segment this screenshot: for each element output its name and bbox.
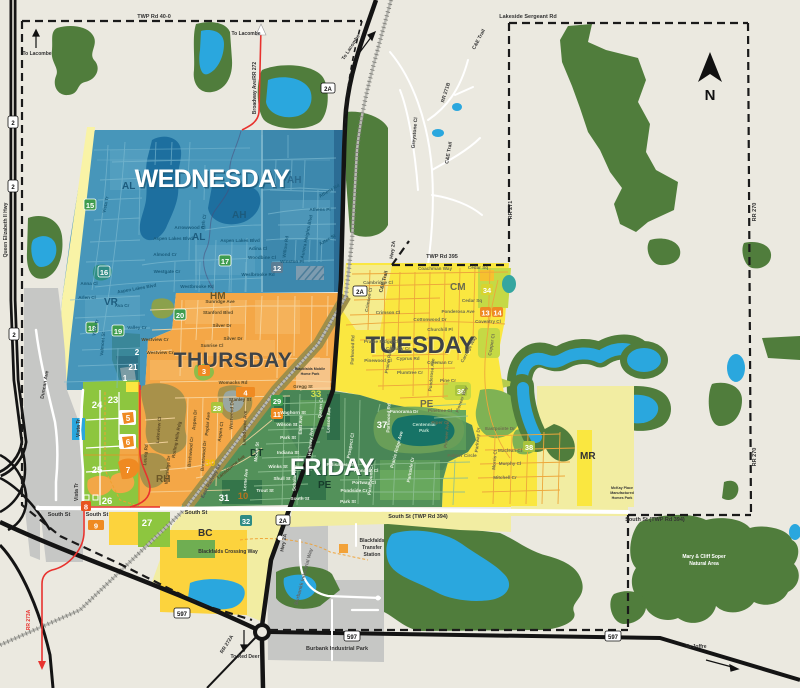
svg-text:Blackfalds Mobile: Blackfalds Mobile — [295, 367, 325, 371]
svg-text:Lakeside Sergeant Rd: Lakeside Sergeant Rd — [499, 14, 556, 20]
svg-text:3: 3 — [202, 367, 206, 376]
svg-text:Eastpointe Dr: Eastpointe Dr — [485, 426, 515, 431]
svg-text:Mitchell Cr: Mitchell Cr — [493, 475, 517, 480]
svg-text:Ava Cr: Ava Cr — [115, 303, 130, 308]
svg-text:Vista Tr: Vista Tr — [74, 483, 80, 501]
svg-text:29: 29 — [273, 397, 281, 406]
svg-text:Cedar Sq: Cedar Sq — [462, 298, 482, 303]
svg-text:Coachman Way: Coachman Way — [418, 266, 452, 271]
svg-text:Pine Cr: Pine Cr — [440, 378, 456, 383]
svg-text:Plumtree Cr: Plumtree Cr — [397, 370, 423, 375]
svg-text:Shull St: Shull St — [273, 476, 291, 481]
svg-text:19: 19 — [114, 327, 122, 336]
svg-text:THURSDAY: THURSDAY — [174, 349, 293, 372]
svg-text:TWP Rd 395: TWP Rd 395 — [426, 254, 458, 260]
svg-text:WEDNESDAY: WEDNESDAY — [135, 165, 291, 193]
svg-text:Indiana St: Indiana St — [277, 450, 299, 455]
svg-text:38: 38 — [525, 443, 533, 452]
svg-text:Winston Pl: Winston Pl — [280, 259, 304, 264]
svg-text:South St (TWP Rd 394): South St (TWP Rd 394) — [625, 517, 685, 523]
svg-text:Cyprus Rd: Cyprus Rd — [396, 356, 419, 361]
svg-text:2: 2 — [135, 348, 140, 357]
svg-text:7: 7 — [126, 466, 131, 475]
svg-text:Winks St: Winks St — [268, 464, 288, 469]
svg-text:Prairie Ridge Cl: Prairie Ridge Cl — [364, 339, 398, 344]
svg-text:14: 14 — [493, 309, 502, 318]
svg-text:9: 9 — [94, 522, 98, 531]
svg-text:AH: AH — [287, 175, 301, 186]
svg-text:Homes Park: Homes Park — [612, 496, 633, 500]
svg-text:RR 273A: RR 273A — [26, 609, 32, 630]
svg-text:Churchill Pl: Churchill Pl — [427, 327, 453, 332]
svg-text:South St: South St — [185, 510, 208, 516]
svg-text:23: 23 — [108, 395, 119, 406]
svg-text:Broadway Ave/RR 272: Broadway Ave/RR 272 — [252, 62, 258, 115]
svg-text:Athens Pl: Athens Pl — [309, 207, 330, 212]
svg-text:South St: South St — [291, 496, 310, 501]
svg-text:10: 10 — [238, 491, 249, 502]
svg-text:Mary & Cliff Soper: Mary & Cliff Soper — [682, 554, 725, 560]
svg-text:RR 270: RR 270 — [752, 448, 758, 467]
svg-text:34: 34 — [483, 286, 492, 295]
svg-text:Burbank Industrial Park: Burbank Industrial Park — [306, 646, 369, 652]
svg-text:27: 27 — [142, 518, 153, 529]
svg-text:Valley Cr: Valley Cr — [127, 325, 147, 330]
svg-text:Blackfalds: Blackfalds — [359, 538, 384, 544]
svg-text:26: 26 — [102, 496, 113, 507]
svg-text:2A: 2A — [324, 87, 332, 93]
svg-text:Pinewood Cl: Pinewood Cl — [364, 358, 392, 363]
svg-text:Maclean Cl: Maclean Cl — [498, 448, 522, 453]
svg-text:Silver Dr: Silver Dr — [213, 323, 232, 328]
svg-text:Anna Cl: Anna Cl — [80, 281, 97, 286]
svg-text:Transfer: Transfer — [362, 545, 382, 551]
svg-text:BC: BC — [198, 528, 212, 539]
svg-text:RR 271: RR 271 — [508, 201, 514, 220]
svg-text:Wilson St: Wilson St — [277, 422, 298, 427]
svg-text:6: 6 — [126, 438, 131, 447]
svg-text:Westview Cr: Westview Cr — [141, 337, 168, 342]
svg-text:Natural Area: Natural Area — [689, 561, 719, 567]
svg-text:Palmer Circle: Palmer Circle — [447, 453, 477, 458]
svg-text:Pinetree Cl: Pinetree Cl — [428, 408, 452, 413]
svg-text:31: 31 — [219, 493, 230, 504]
svg-text:RR 270: RR 270 — [752, 203, 758, 222]
svg-text:Sunridge Ave: Sunridge Ave — [205, 299, 235, 304]
svg-text:Pondside Cr: Pondside Cr — [340, 488, 367, 493]
svg-text:Silver Dr: Silver Dr — [224, 336, 243, 341]
svg-text:2A: 2A — [356, 290, 364, 296]
svg-text:Aspen Lakes Blvd: Aspen Lakes Blvd — [220, 238, 260, 243]
svg-text:Pinnacle Cl: Pinnacle Cl — [354, 468, 379, 473]
svg-text:Vista Tr: Vista Tr — [76, 419, 82, 437]
svg-text:Almond Cr: Almond Cr — [153, 252, 177, 257]
svg-text:Park St: Park St — [340, 499, 356, 504]
svg-text:Parkwood Rd: Parkwood Rd — [349, 335, 355, 365]
svg-text:N: N — [705, 87, 716, 104]
svg-text:Ponderosa Ave: Ponderosa Ave — [441, 309, 475, 314]
svg-text:Murphy Cl: Murphy Cl — [499, 461, 521, 466]
svg-text:South St (TWP Rd 394): South St (TWP Rd 394) — [388, 514, 448, 520]
svg-text:Woodbine Cl: Woodbine Cl — [248, 255, 276, 260]
svg-text:Stanford Blvd: Stanford Blvd — [203, 310, 233, 315]
svg-text:MR: MR — [580, 451, 596, 462]
svg-text:Palisades St: Palisades St — [326, 462, 354, 467]
svg-text:17: 17 — [221, 257, 229, 266]
svg-text:8: 8 — [84, 503, 88, 512]
svg-text:25: 25 — [92, 465, 103, 476]
svg-text:20: 20 — [176, 311, 184, 320]
svg-text:Park: Park — [419, 428, 429, 433]
svg-text:28: 28 — [213, 404, 221, 413]
svg-text:Manufactured: Manufactured — [610, 491, 634, 495]
svg-text:To Lacombe: To Lacombe — [231, 31, 260, 37]
svg-text:24: 24 — [92, 400, 103, 411]
svg-text:Arlen Cl: Arlen Cl — [78, 295, 96, 300]
svg-text:South St: South St — [48, 512, 71, 518]
svg-text:Scholar Ave: Scholar Ave — [292, 464, 298, 491]
svg-text:Home Park: Home Park — [301, 372, 320, 376]
svg-text:TWP Rd 40-0: TWP Rd 40-0 — [137, 14, 171, 20]
svg-text:AL: AL — [192, 232, 205, 243]
svg-text:30: 30 — [205, 458, 216, 469]
svg-text:Trout St: Trout St — [256, 488, 274, 493]
svg-text:Queen Elizabeth II Hwy: Queen Elizabeth II Hwy — [3, 202, 9, 257]
svg-text:Leeson Ave: Leeson Ave — [326, 407, 332, 433]
svg-text:32: 32 — [242, 517, 250, 526]
svg-text:AH: AH — [232, 210, 246, 221]
svg-text:McKay Place: McKay Place — [611, 486, 633, 490]
svg-text:2A: 2A — [279, 519, 287, 525]
svg-text:East Ave: East Ave — [298, 415, 304, 435]
svg-text:Parkwood Rd: Parkwood Rd — [385, 403, 391, 433]
svg-text:To Lacombe: To Lacombe — [22, 51, 51, 57]
svg-text:Westwood Dr: Westwood Dr — [228, 400, 234, 430]
svg-text:South St: South St — [86, 512, 109, 518]
svg-text:597: 597 — [608, 635, 619, 641]
svg-text:Crimson Cl: Crimson Cl — [376, 310, 401, 315]
svg-text:Station: Station — [364, 552, 381, 558]
svg-text:15: 15 — [86, 201, 94, 210]
svg-text:PE: PE — [318, 480, 332, 491]
svg-text:Gregg St: Gregg St — [293, 384, 313, 389]
svg-text:Panorama Dr: Panorama Dr — [390, 409, 419, 414]
svg-text:Sunrise Cl: Sunrise Cl — [201, 343, 224, 348]
svg-text:Westbrooke Rd: Westbrooke Rd — [180, 284, 214, 289]
svg-text:Weslbrooke Rd: Weslbrooke Rd — [241, 272, 275, 277]
svg-text:1: 1 — [123, 374, 128, 383]
svg-text:5: 5 — [126, 414, 131, 423]
svg-text:Westview Cr: Westview Cr — [146, 350, 173, 355]
svg-text:Cedar Sq: Cedar Sq — [468, 265, 488, 270]
svg-text:Park St: Park St — [280, 435, 296, 440]
svg-text:597: 597 — [177, 612, 188, 618]
svg-text:13: 13 — [481, 309, 489, 318]
svg-text:21: 21 — [129, 363, 138, 372]
svg-text:AL: AL — [122, 181, 135, 192]
svg-text:Aspen Lakes Blvd: Aspen Lakes Blvd — [153, 236, 193, 241]
svg-text:Coventry Cl: Coventry Cl — [475, 319, 501, 324]
svg-text:Adina Cl: Adina Cl — [249, 246, 268, 251]
svg-text:Waghorn St: Waghorn St — [280, 410, 306, 415]
svg-text:To Joffre: To Joffre — [685, 644, 706, 650]
svg-text:To Red Deer: To Red Deer — [230, 654, 259, 660]
svg-text:TUESDAY: TUESDAY — [366, 332, 475, 359]
svg-text:Westgate Cr: Westgate Cr — [154, 269, 181, 274]
svg-text:16: 16 — [100, 268, 108, 277]
svg-text:Blackfalds Crossing Way: Blackfalds Crossing Way — [198, 549, 258, 555]
svg-text:Womacks Rd: Womacks Rd — [219, 380, 248, 385]
svg-text:Cambridge Cl: Cambridge Cl — [363, 280, 393, 285]
svg-text:Cottonwood Dr: Cottonwood Dr — [413, 317, 446, 322]
svg-text:CM: CM — [450, 282, 466, 293]
svg-text:597: 597 — [347, 635, 358, 641]
